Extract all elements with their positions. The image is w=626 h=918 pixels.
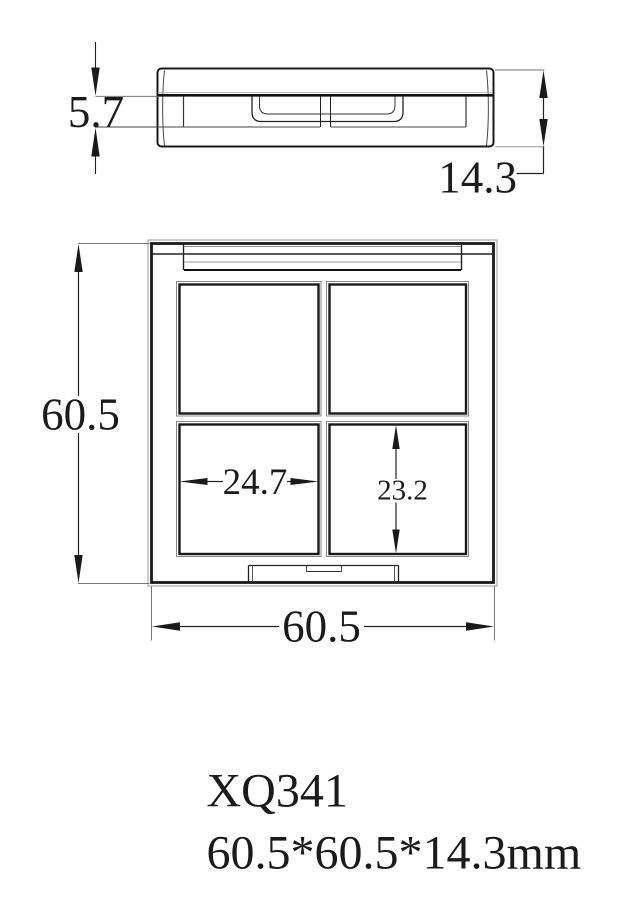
front-view — [148, 240, 497, 586]
dimension-label-lid-thickness: 5.7 — [68, 87, 124, 137]
dimension-label-overall-width: 60.5 — [282, 602, 361, 652]
pan-top-left — [177, 282, 322, 417]
technical-drawing-page: 5.7 14.3 — [0, 0, 626, 918]
pan-cavity — [180, 285, 319, 414]
dimension-label-pan-height: 23.2 — [377, 475, 428, 507]
dimension-label-overall-height: 60.5 — [41, 390, 120, 440]
dimension-label-total-thickness: 14.3 — [438, 153, 517, 203]
compact-drawing-svg: 5.7 14.3 — [0, 0, 626, 918]
pan-cavity — [330, 285, 467, 414]
dimension-label-pan-width: 24.7 — [223, 462, 288, 503]
caption-size-spec: 60.5*60.5*14.3mm — [207, 827, 582, 880]
pan-top-right — [327, 282, 469, 417]
side-view-outline — [158, 69, 494, 147]
caption-model-code: XQ341 — [207, 765, 348, 818]
